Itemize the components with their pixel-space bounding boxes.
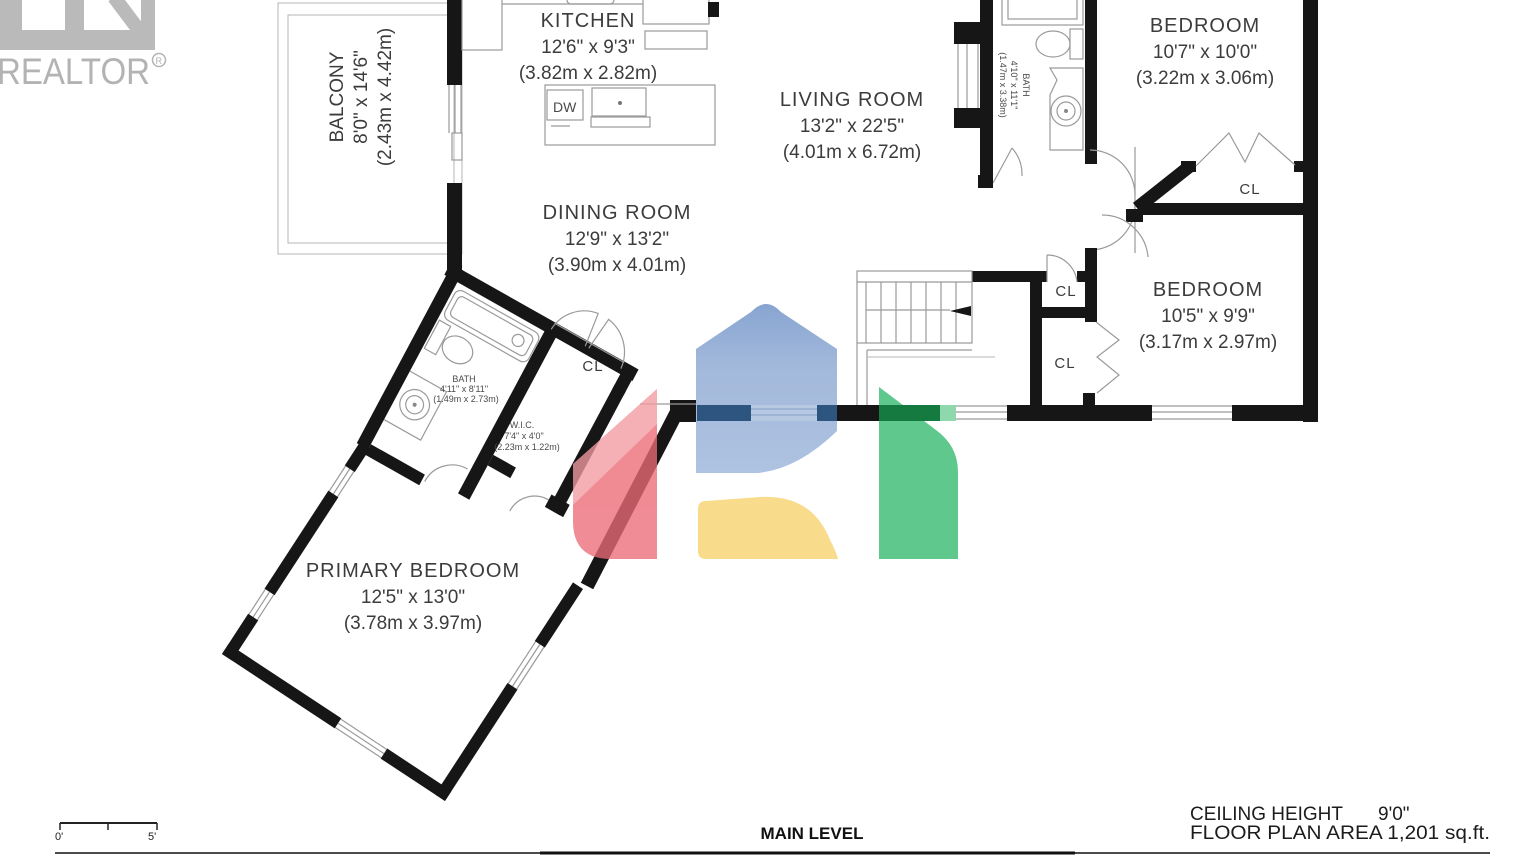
svg-text:DW: DW <box>553 99 577 115</box>
svg-text:FLOOR PLAN AREA 1,201 sq.ft.: FLOOR PLAN AREA 1,201 sq.ft. <box>1190 823 1490 844</box>
svg-text:12'6" x 9'3": 12'6" x 9'3" <box>541 37 635 58</box>
svg-text:BEDROOM: BEDROOM <box>1153 279 1263 301</box>
svg-text:(3.78m x 3.97m): (3.78m x 3.97m) <box>344 613 482 634</box>
svg-text:LIVING ROOM: LIVING ROOM <box>780 89 924 111</box>
svg-text:12'5" x 13'0": 12'5" x 13'0" <box>361 587 465 608</box>
svg-text:(1.49m x 2.73m): (1.49m x 2.73m) <box>433 394 499 404</box>
svg-text:5': 5' <box>148 831 156 843</box>
svg-text:7'4" x 4'0": 7'4" x 4'0" <box>504 431 543 441</box>
svg-text:REALTOR: REALTOR <box>0 51 150 92</box>
svg-text:10'5" x 9'9": 10'5" x 9'9" <box>1161 306 1255 327</box>
svg-text:(2.43m x 4.42m): (2.43m x 4.42m) <box>375 28 396 166</box>
svg-text:MAIN LEVEL: MAIN LEVEL <box>761 824 864 843</box>
svg-text:PRIMARY BEDROOM: PRIMARY BEDROOM <box>306 560 520 582</box>
svg-text:10'7" x 10'0": 10'7" x 10'0" <box>1153 42 1257 63</box>
svg-text:12'9" x 13'2": 12'9" x 13'2" <box>565 229 669 250</box>
svg-text:(3.82m x 2.82m): (3.82m x 2.82m) <box>519 63 657 84</box>
svg-text:(1.47m x 3.38m): (1.47m x 3.38m) <box>998 52 1008 118</box>
svg-text:BATH: BATH <box>452 374 475 384</box>
svg-text:CL: CL <box>1239 181 1260 198</box>
svg-text:DINING ROOM: DINING ROOM <box>543 202 692 224</box>
svg-text:CL: CL <box>1055 283 1076 300</box>
svg-text:CL: CL <box>582 358 603 375</box>
svg-text:4'11" x 8'11": 4'11" x 8'11" <box>440 384 488 394</box>
svg-text:CL: CL <box>1054 355 1075 372</box>
svg-text:CEILING HEIGHT: CEILING HEIGHT <box>1190 804 1343 825</box>
svg-text:W.I.C.: W.I.C. <box>510 420 535 430</box>
svg-text:(2.23m x 1.22m): (2.23m x 1.22m) <box>494 442 560 452</box>
svg-text:BALCONY: BALCONY <box>327 51 348 142</box>
svg-text:BEDROOM: BEDROOM <box>1150 15 1260 37</box>
svg-text:BATH: BATH <box>1021 73 1031 96</box>
svg-text:(3.17m x 2.97m): (3.17m x 2.97m) <box>1139 332 1277 353</box>
svg-text:13'2" x 22'5": 13'2" x 22'5" <box>800 116 904 137</box>
svg-text:(3.90m x 4.01m): (3.90m x 4.01m) <box>548 255 686 276</box>
svg-text:8'0" x 14'6": 8'0" x 14'6" <box>351 50 372 144</box>
svg-text:R: R <box>156 56 163 66</box>
svg-text:KITCHEN: KITCHEN <box>541 10 636 32</box>
svg-text:(3.22m x 3.06m): (3.22m x 3.06m) <box>1136 68 1274 89</box>
svg-text:4'10" x 11'1": 4'10" x 11'1" <box>1009 61 1019 110</box>
svg-text:(4.01m x 6.72m): (4.01m x 6.72m) <box>783 142 921 163</box>
svg-text:9'0": 9'0" <box>1378 804 1410 825</box>
svg-text:0': 0' <box>55 831 63 843</box>
